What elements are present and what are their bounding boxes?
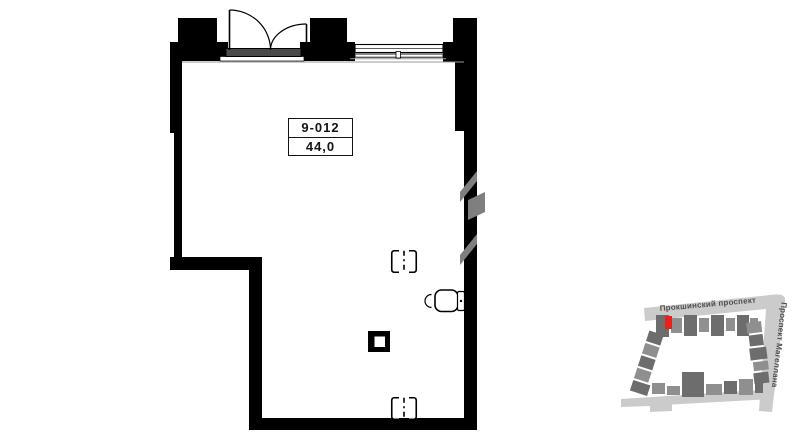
toilet-flush-arc (425, 295, 431, 308)
door-sill (226, 49, 301, 57)
bracket-right (409, 251, 416, 273)
wall-top-mid-pier-upper (310, 18, 347, 44)
wall-top-mid-pier (300, 42, 355, 61)
wall-top-right-pier (453, 18, 477, 44)
building-block (739, 379, 753, 395)
building-block (638, 355, 656, 370)
bracket-left (392, 398, 399, 420)
floor-plan-drawing: Прокшинский проспект Проспект Магеллана (0, 0, 800, 442)
building-block (724, 381, 737, 394)
buildings-bottom-row (652, 372, 763, 397)
building-block (706, 384, 722, 395)
wall-right-inner-upper (455, 61, 465, 131)
door-under-strip (220, 57, 304, 62)
building-block (684, 315, 697, 336)
building-block (726, 318, 735, 331)
wall-top-left-pier (178, 18, 217, 44)
entry-double-door (220, 10, 307, 61)
wall-left-upper (170, 42, 182, 133)
building-block (652, 383, 665, 394)
current-unit-marker (665, 316, 672, 329)
utility-box-top (392, 251, 417, 273)
building-block (634, 368, 652, 383)
window (350, 45, 446, 59)
wall-left-lower (174, 130, 182, 260)
wall-bottom (249, 418, 477, 430)
site-minimap: Прокшинский проспект Проспект Магеллана (621, 295, 788, 412)
column-inner (375, 337, 386, 348)
building-block (667, 386, 680, 395)
unit-label-box: 9-012 44,0 (288, 118, 353, 156)
wall-top-right (443, 42, 477, 62)
building-block (682, 372, 704, 397)
wall-notch-horizontal (170, 257, 262, 270)
building-block (753, 372, 769, 385)
window-mullion (396, 52, 401, 59)
bracket-right (409, 398, 416, 420)
toilet-icon (425, 290, 464, 312)
floorplan-viewer: Прокшинский проспект Проспект Магеллана … (0, 0, 800, 442)
door-swing-left (230, 10, 271, 50)
building-block (642, 343, 660, 358)
building-block (749, 334, 764, 347)
toilet-tank-dot (460, 300, 462, 302)
toilet-bowl (435, 290, 458, 312)
building-block (749, 347, 767, 361)
column (368, 331, 390, 352)
building-block (671, 318, 682, 333)
unit-number: 9-012 (289, 119, 352, 138)
utility-box-bottom (392, 398, 417, 420)
building-block (753, 360, 769, 371)
building-block (699, 318, 709, 332)
building-block (711, 315, 724, 336)
unit-area: 44,0 (289, 138, 352, 156)
bracket-left (392, 251, 399, 273)
wall-notch-vertical (249, 262, 262, 430)
walls (170, 18, 477, 430)
building-block (746, 321, 762, 334)
